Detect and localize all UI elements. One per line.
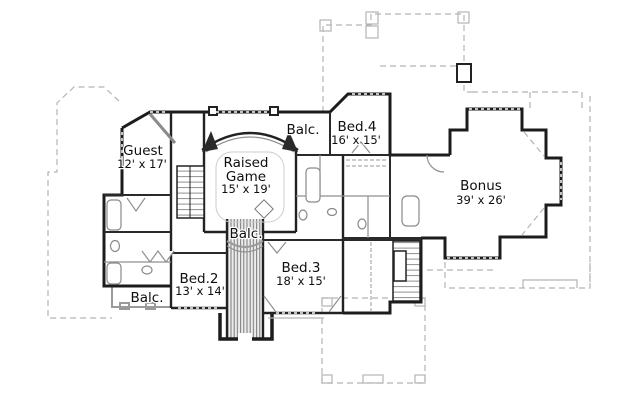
bathtub (306, 168, 320, 202)
balcony-center-label: Balc. (230, 226, 263, 242)
bed4-room-dims: 16' x 15' (331, 133, 381, 147)
toilet (111, 241, 120, 252)
roof-outline-top-right (320, 12, 582, 112)
bed3-bay (264, 296, 341, 318)
bathtub (107, 263, 121, 284)
fireplace (255, 200, 273, 218)
floor-plan-canvas: Guest 12' x 17' Balc. Bed.4 16' x 15' Ra… (0, 0, 620, 415)
guest-room-dims: 12' x 17' (117, 157, 167, 171)
sink (142, 266, 152, 274)
stairs-right (393, 241, 420, 301)
bathtub (107, 200, 121, 230)
bonus-room-label: Bonus (460, 178, 502, 194)
roof-post (366, 26, 378, 38)
stairs-main (177, 166, 204, 218)
toilet (299, 210, 307, 220)
porch-step-gap (238, 333, 252, 341)
closet-lines (346, 160, 388, 311)
stair-landing-wall (394, 251, 406, 281)
rail-post (209, 107, 217, 115)
bed3-room-dims: 18' x 15' (276, 274, 326, 288)
game-room-dims: 15' x 19' (221, 182, 271, 196)
rail-post (270, 107, 278, 115)
chimney (457, 64, 471, 82)
floor-plan-drawing: Guest 12' x 17' Balc. Bed.4 16' x 15' Ra… (0, 0, 620, 415)
balcony-top-label: Balc. (287, 122, 320, 138)
labels: Guest 12' x 17' Balc. Bed.4 16' x 15' Ra… (117, 119, 506, 306)
balcony-lower-label: Balc. (131, 290, 164, 306)
roof-outline-bottom-porch (322, 298, 425, 383)
bonus-room-dims: 39' x 26' (456, 193, 506, 207)
bathtub (402, 196, 419, 226)
toilet (358, 219, 366, 229)
sink (328, 209, 337, 216)
bed2-room-dims: 13' x 14' (175, 284, 225, 298)
